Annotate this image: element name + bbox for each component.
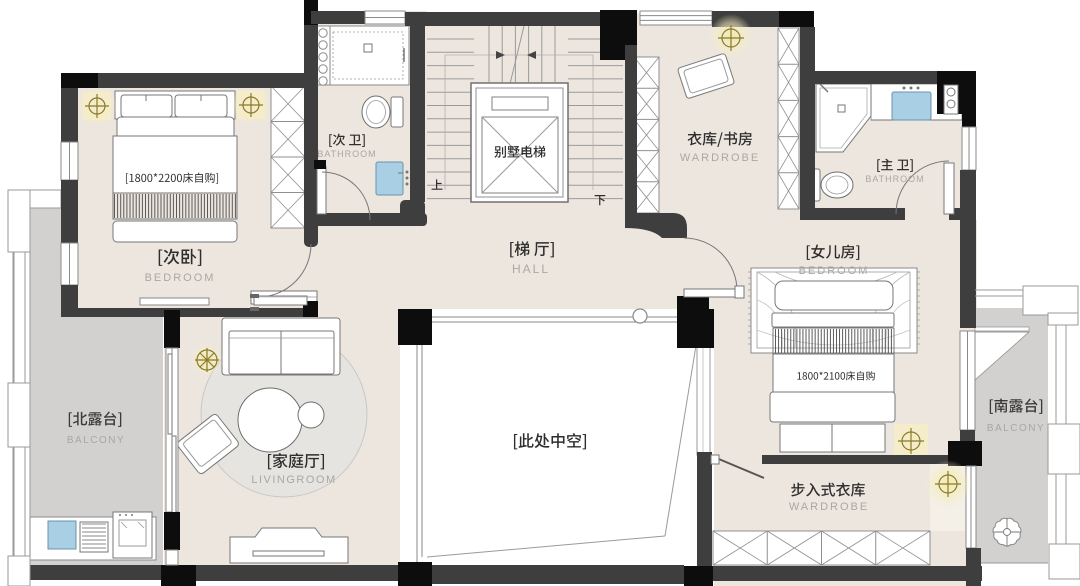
svg-text:WARDROBE: WARDROBE <box>680 152 760 164</box>
svg-text:BALCONY: BALCONY <box>67 435 125 446</box>
svg-text:LIVINGROOM: LIVINGROOM <box>251 474 336 486</box>
svg-text:BEDROOM: BEDROOM <box>799 265 870 277</box>
svg-text:HALL: HALL <box>512 262 550 276</box>
svg-text:WARDROBE: WARDROBE <box>789 501 869 513</box>
svg-text:BATHROOM: BATHROOM <box>865 174 924 184</box>
svg-text:BEDROOM: BEDROOM <box>145 272 216 284</box>
svg-text:BALCONY: BALCONY <box>987 423 1045 434</box>
svg-text:BATHROOM: BATHROOM <box>317 149 376 159</box>
